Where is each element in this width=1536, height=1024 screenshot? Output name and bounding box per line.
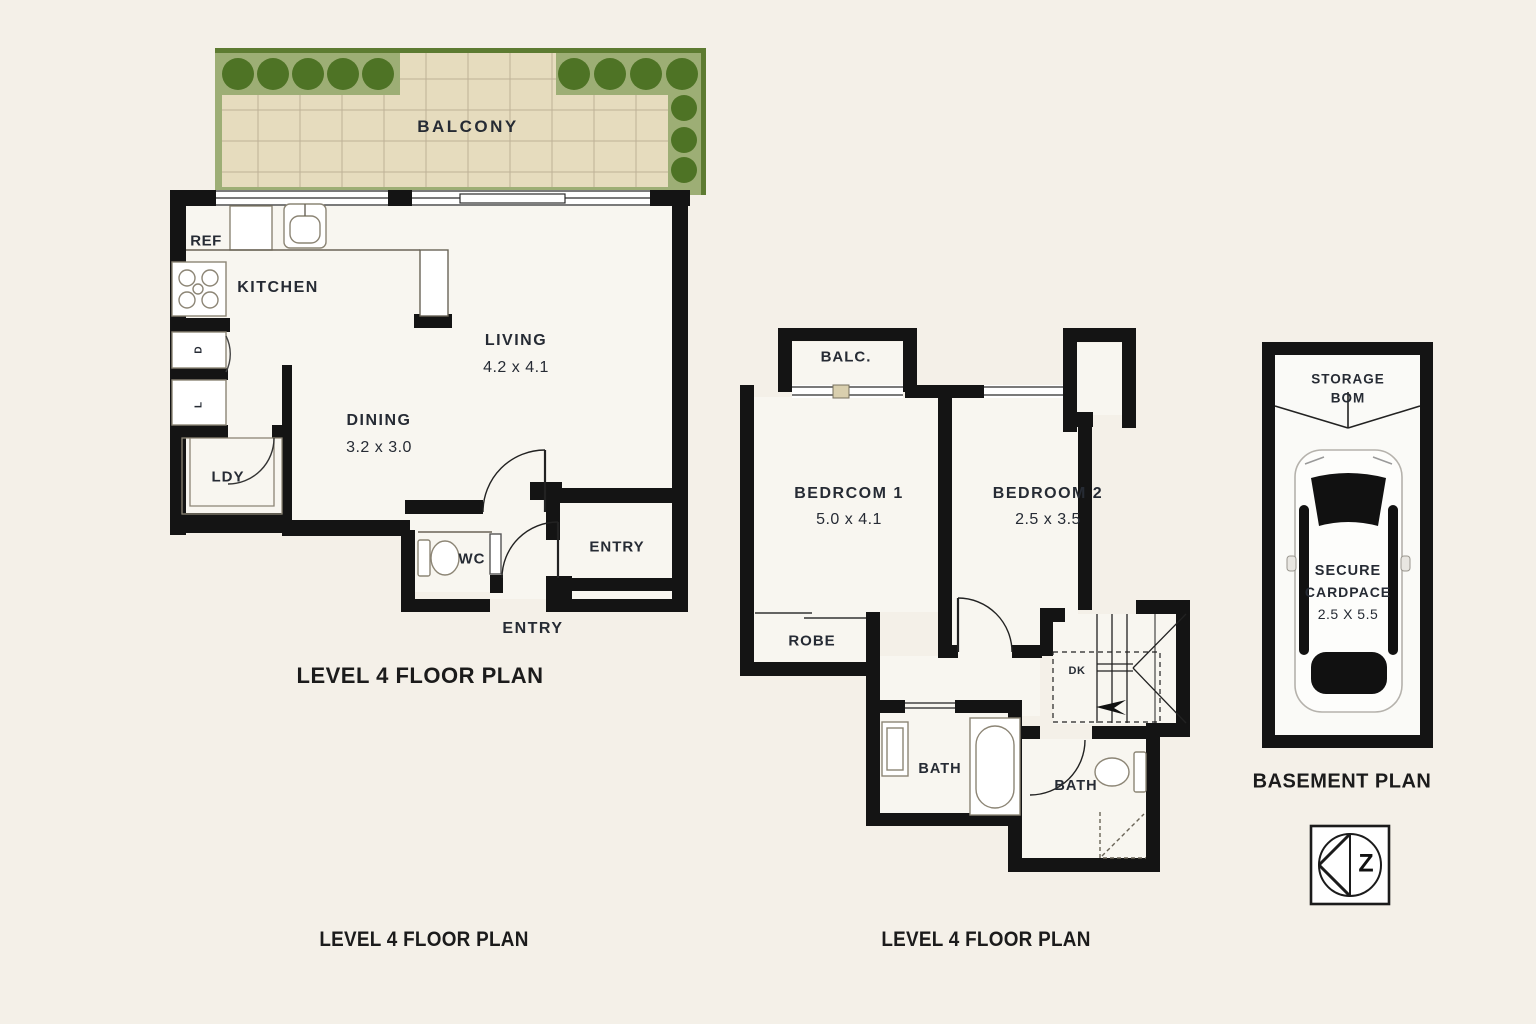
living-dims: 4.2 x 4.1 [483,359,549,377]
living-windows [216,190,650,206]
laundry-label: LDY [212,469,245,486]
bath-left-label: BATH [918,761,961,777]
storage-label-line2: BOM [1331,391,1366,406]
robe-label: ROBE [788,633,835,650]
middle-plan [740,328,1190,872]
bedroom2-dims: 2.5 x 3.5 [1015,511,1081,529]
entry-door-label: ENTRY [502,620,563,638]
cabinet-l-label: L [194,402,205,408]
wc-label: WC [459,551,486,568]
floorplan-scene: BALCONY REF KITCHEN LIVING 4.2 x 4.1 DIN… [0,0,1536,1024]
dining-dims: 3.2 x 3.0 [346,439,412,457]
entry-room-label: ENTRY [589,539,644,556]
floorplan-drawing [0,0,1536,1024]
storage-label-line1: STORAGE [1311,372,1385,387]
bedroom2-label: BEDROOM 2 [993,485,1103,503]
bedroom1-dims: 5.0 x 4.1 [816,511,882,529]
bedroom1-label: BEDRCOM 1 [794,485,904,503]
left-plan-title: LEVEL 4 FLOOR PLAN [297,663,544,689]
balc-label: BALC. [821,349,872,366]
middle-plan-caption: LEVEL 4 FLOOR PLAN [881,928,1090,952]
bath-right-label: BATH [1054,778,1097,794]
cabinet-d-label: D [194,346,205,353]
car-top-view [1287,450,1410,712]
carspace-label-line1: SECURE [1315,563,1381,579]
carspace-dims: 2.5 X 5.5 [1318,606,1379,622]
kitchen-label: KITCHEN [237,279,319,297]
stair-dk-label: DK [1069,665,1086,677]
north-compass-icon [1311,826,1389,904]
left-plan-caption: LEVEL 4 FLOOR PLAN [319,928,528,952]
ref-label: REF [190,233,222,250]
basement-plan-title: BASEMENT PLAN [1253,771,1432,794]
living-label: LIVING [485,332,547,350]
balcony-label: BALCONY [417,117,519,137]
carspace-label-line2: CARDPACE [1305,584,1391,600]
north-letter: Z [1358,850,1373,879]
dining-label: DINING [347,412,412,430]
